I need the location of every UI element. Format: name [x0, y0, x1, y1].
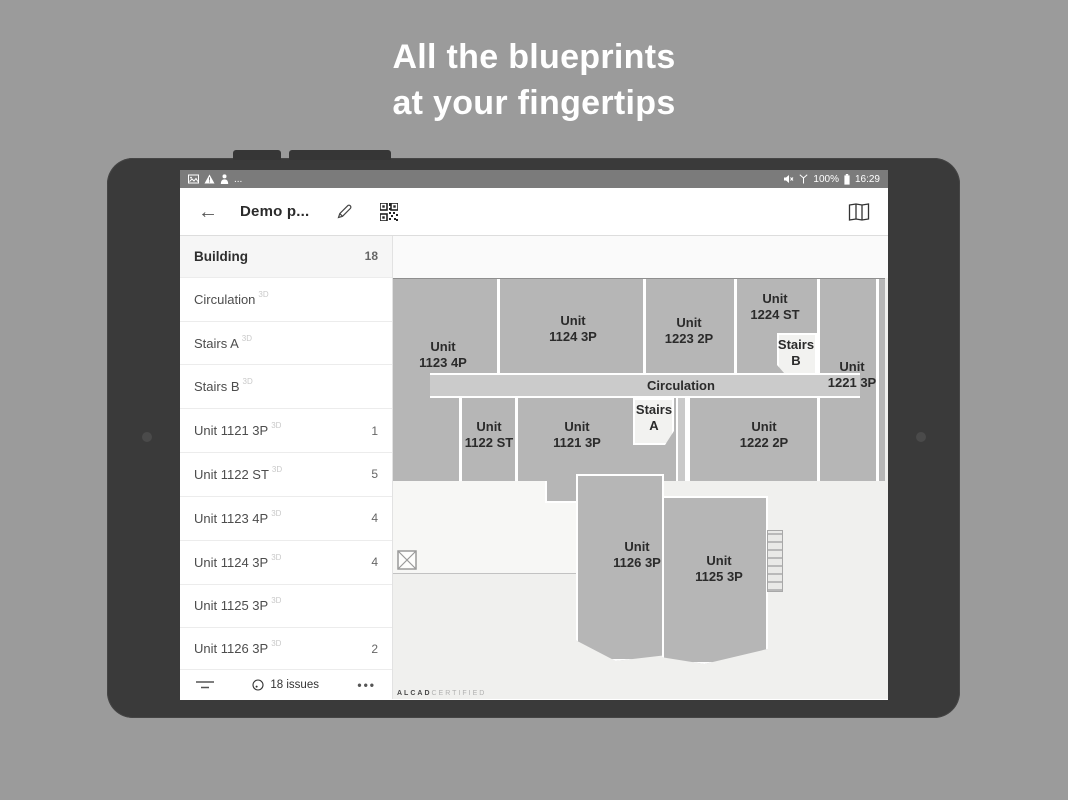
item-label: Unit 1121 3P	[194, 423, 268, 438]
layers-sidebar: Building 18 Circulation 3D Stairs A 3D S…	[180, 236, 393, 699]
item-3d-badge: 3D	[271, 639, 281, 648]
wall-separator	[734, 279, 737, 374]
sidebar-item-unit-1121[interactable]: Unit 1121 3P 3D 1	[180, 409, 392, 453]
mute-icon	[783, 174, 794, 184]
item-label: Stairs B	[194, 379, 240, 394]
floorplan-viewport[interactable]: Unit1123 4P Unit1124 3P Unit1223 2P Unit…	[393, 236, 888, 699]
sidebar-item-unit-1125[interactable]: Unit 1125 3P 3D	[180, 585, 392, 629]
stairs-b-label[interactable]: StairsB	[778, 337, 814, 369]
item-3d-badge: 3D	[271, 509, 281, 518]
status-bar: ... 100% 16:29	[180, 170, 888, 188]
hallway	[676, 398, 687, 481]
signal-icon	[799, 174, 808, 184]
issues-count-label: 18 issues	[270, 679, 319, 691]
battery-percent: 100%	[813, 174, 839, 185]
item-3d-badge: 3D	[272, 465, 282, 474]
item-label: Building	[194, 249, 248, 264]
headline: All the blueprints at your fingertips	[0, 34, 1068, 126]
sidebar-item-unit-1123[interactable]: Unit 1123 4P 3D 4	[180, 497, 392, 541]
unit-label-1121[interactable]: Unit1121 3P	[553, 419, 601, 451]
wall-separator	[876, 279, 879, 481]
unit-label-1222[interactable]: Unit1222 2P	[740, 419, 788, 451]
circulation-label[interactable]: Circulation	[647, 378, 715, 394]
plan-top-margin	[393, 236, 888, 278]
wall-separator	[515, 398, 518, 481]
status-more-text: ...	[234, 174, 242, 185]
person-icon	[220, 174, 229, 184]
item-3d-badge: 3D	[271, 553, 281, 562]
building-jog	[545, 481, 579, 503]
camera-left-icon	[142, 432, 152, 442]
sidebar-item-unit-1122[interactable]: Unit 1122 ST 3D 5	[180, 453, 392, 497]
app-screen: ... 100% 16:29 ← Demo p...	[180, 170, 888, 700]
unit-label-1123[interactable]: Unit1123 4P	[419, 339, 467, 371]
item-label: Unit 1122 ST	[194, 467, 269, 482]
wall-separator	[497, 279, 500, 374]
sidebar-item-unit-1124[interactable]: Unit 1124 3P 3D 4	[180, 541, 392, 585]
item-label: Unit 1126 3P	[194, 641, 268, 656]
wall-separator	[643, 279, 646, 374]
item-count: 1	[371, 424, 378, 438]
item-label: Stairs A	[194, 336, 239, 351]
unit-label-1224[interactable]: Unit1224 ST	[750, 291, 799, 323]
item-count: 5	[371, 467, 378, 481]
map-icon[interactable]	[848, 203, 870, 221]
battery-icon	[844, 174, 850, 185]
wall-separator	[687, 398, 690, 481]
camera-right-icon	[916, 432, 926, 442]
app-header: ← Demo p...	[180, 188, 888, 236]
watermark-bold: ALCAD	[397, 690, 432, 697]
unit-label-1124[interactable]: Unit1124 3P	[549, 313, 597, 345]
floorplan-canvas[interactable]: Unit1123 4P Unit1124 3P Unit1223 2P Unit…	[393, 278, 888, 699]
issues-button[interactable]: 18 issues	[252, 679, 319, 691]
watermark-light: CERTIFIED	[432, 690, 487, 697]
screenshot-icon	[188, 174, 199, 184]
unit-label-1223[interactable]: Unit1223 2P	[665, 315, 713, 347]
sidebar-item-building[interactable]: Building 18	[180, 236, 392, 278]
unit-label-1221[interactable]: Unit1221 3P	[828, 359, 876, 391]
sidebar-item-unit-1126[interactable]: Unit 1126 3P 3D 2	[180, 628, 392, 670]
back-button[interactable]: ←	[198, 202, 218, 222]
exterior-stairs	[767, 530, 783, 592]
warning-icon	[204, 174, 215, 184]
sidebar-item-circulation[interactable]: Circulation 3D	[180, 278, 392, 322]
qr-code-icon[interactable]	[380, 203, 398, 221]
issue-circle-icon	[252, 679, 264, 691]
item-label: Circulation	[194, 292, 255, 307]
sidebar-item-stairs-b[interactable]: Stairs B 3D	[180, 365, 392, 409]
stairs-a-label[interactable]: StairsA	[636, 402, 672, 434]
item-label: Unit 1125 3P	[194, 598, 268, 613]
headline-line-1: All the blueprints	[0, 34, 1068, 80]
headline-line-2: at your fingertips	[0, 80, 1068, 126]
item-3d-badge: 3D	[258, 290, 268, 299]
content-area: Building 18 Circulation 3D Stairs A 3D S…	[180, 236, 888, 699]
item-3d-badge: 3D	[242, 334, 252, 343]
volume-button	[289, 150, 391, 160]
unit-label-1125[interactable]: Unit1125 3P	[695, 553, 743, 585]
plan-marker-icon	[397, 550, 417, 570]
filter-icon[interactable]	[196, 680, 214, 690]
watermark: ALCADCERTIFIED	[397, 690, 486, 697]
item-3d-badge: 3D	[243, 377, 253, 386]
more-menu-button[interactable]: •••	[357, 678, 376, 692]
unit-label-1126[interactable]: Unit1126 3P	[613, 539, 661, 571]
circulation-corridor	[430, 373, 860, 398]
wall-separator	[459, 398, 462, 481]
item-count: 4	[371, 555, 378, 569]
item-3d-badge: 3D	[271, 596, 281, 605]
clock-text: 16:29	[855, 174, 880, 185]
edit-pencil-icon[interactable]	[335, 202, 354, 221]
power-button	[233, 150, 281, 160]
item-3d-badge: 3D	[271, 421, 281, 430]
item-count: 4	[371, 511, 378, 525]
item-label: Unit 1123 4P	[194, 511, 268, 526]
item-count: 2	[371, 642, 378, 656]
sidebar-footer: 18 issues •••	[180, 670, 392, 699]
item-label: Unit 1124 3P	[194, 555, 268, 570]
tablet-device: ... 100% 16:29 ← Demo p...	[107, 158, 960, 718]
unit-label-1122[interactable]: Unit1122 ST	[465, 419, 513, 451]
item-count: 18	[365, 249, 378, 263]
sidebar-item-stairs-a[interactable]: Stairs A 3D	[180, 322, 392, 366]
project-title[interactable]: Demo p...	[240, 203, 309, 220]
